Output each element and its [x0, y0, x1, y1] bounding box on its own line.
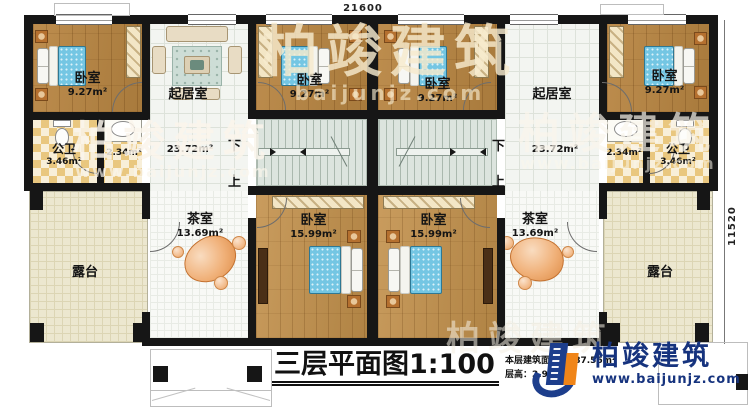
wall — [367, 15, 378, 346]
room-label-living-right: 起居室 — [507, 88, 597, 103]
toilet-tank — [53, 120, 71, 127]
stair-arrow — [450, 148, 460, 156]
logo-building-orange — [563, 353, 578, 385]
bed-mattress — [309, 246, 341, 294]
tea-stool — [214, 276, 228, 290]
column — [697, 191, 710, 210]
nightstand — [384, 30, 397, 43]
tv-cabinet — [258, 248, 268, 304]
wall — [599, 183, 718, 191]
nightstand — [349, 30, 362, 43]
column — [695, 323, 709, 342]
stair-label-down-right: 下 — [492, 135, 505, 154]
dimension-line-right — [724, 20, 725, 344]
bed-mattress — [410, 246, 442, 294]
room-label-terrace-right: 露台 — [630, 266, 690, 281]
toilet-tank — [676, 120, 694, 127]
column — [133, 323, 147, 342]
stair-label-up-left: 上 — [228, 171, 241, 190]
bed-sheet — [341, 246, 351, 294]
floor-plan-canvas: 21600 11520 — [0, 0, 750, 407]
brand-logo: 柏竣建筑 www.baijunjz.com — [532, 341, 741, 401]
wall — [142, 191, 150, 219]
stair-rail — [396, 148, 488, 156]
nightstand — [386, 295, 400, 308]
column — [153, 366, 168, 382]
armchair — [152, 46, 166, 74]
room-label-living-left: 起居室 — [143, 88, 233, 103]
column — [30, 191, 43, 210]
stair-label-up-right: 上 — [492, 171, 505, 190]
armchair — [228, 46, 242, 74]
wall — [24, 112, 150, 120]
room-area-wash-left: 2.34m² — [103, 148, 145, 158]
wall — [248, 15, 256, 112]
room-area-living-right: 23.72m² — [510, 144, 600, 156]
roof-outline — [600, 4, 664, 15]
wall — [24, 15, 33, 191]
nightstand — [35, 30, 48, 43]
brand-logo-text: 柏竣建筑 www.baijunjz.com — [592, 341, 741, 387]
window — [266, 14, 332, 25]
page-title: 三层平面图1:100 — [272, 350, 499, 386]
room-label-bedroom-large-left: 卧室 15.99m² — [266, 214, 361, 240]
stair-arrow — [270, 148, 280, 156]
column — [30, 323, 44, 342]
bed-pillows — [388, 248, 400, 292]
tea-stool — [562, 246, 574, 258]
room-label-bedroom-top-left: 卧室 9.27m² — [40, 72, 135, 98]
coffee-table — [184, 56, 210, 74]
roof-outline — [54, 3, 130, 16]
wall — [497, 15, 505, 112]
room-label-terrace-left: 露台 — [55, 266, 115, 281]
stair-arrow — [296, 148, 306, 156]
wall — [599, 191, 607, 219]
room-label-bedroom-left2: 卧室 9.27m² — [262, 74, 357, 100]
brand-url: www.baijunjz.com — [592, 372, 741, 387]
wardrobe — [258, 26, 273, 78]
tea-stool — [518, 276, 532, 290]
stair-label-down-left: 下 — [228, 135, 241, 154]
column — [247, 366, 262, 382]
room-label-bath-right: 公卫 3.46m² — [652, 143, 704, 167]
sink — [614, 121, 638, 137]
nightstand — [347, 295, 361, 308]
window — [510, 14, 558, 25]
bed-sheet — [400, 246, 410, 294]
wall — [599, 112, 718, 120]
stair-arrow — [476, 148, 486, 156]
room-label-bath-left: 公卫 3.46m² — [38, 143, 90, 167]
wall — [248, 110, 378, 119]
dimension-label-top: 21600 — [328, 3, 398, 14]
window — [398, 14, 464, 25]
wall — [248, 186, 378, 195]
nightstand — [694, 32, 707, 45]
column — [606, 323, 620, 342]
tv-cabinet — [483, 248, 493, 304]
wall — [378, 186, 505, 195]
room-label-bedroom-top-right: 卧室 9.27m² — [622, 70, 707, 96]
room-label-tea-right: 茶室 13.69m² — [495, 213, 575, 239]
room-area-wash-right: 2.34m² — [603, 148, 645, 158]
room-area-living-left: 23.72m² — [145, 144, 235, 156]
brand-name: 柏竣建筑 — [592, 341, 741, 372]
wall — [378, 110, 505, 119]
wall — [248, 218, 256, 346]
room-label-bedroom-large-right: 卧室 15.99m² — [386, 214, 481, 240]
wardrobe — [474, 26, 489, 78]
room-label-bedroom-right2: 卧室 9.27m² — [390, 78, 485, 104]
brand-logo-icon — [532, 341, 586, 401]
sink — [111, 121, 135, 137]
sofa — [166, 26, 228, 42]
dimension-label-right: 11520 — [727, 198, 738, 254]
wardrobe — [126, 26, 141, 78]
wall — [709, 15, 718, 191]
window — [628, 14, 686, 25]
wall — [24, 183, 150, 191]
window — [188, 14, 236, 25]
room-label-tea-left: 茶室 13.69m² — [160, 213, 240, 239]
bed-pillows — [351, 248, 363, 292]
tea-stool — [172, 246, 184, 258]
